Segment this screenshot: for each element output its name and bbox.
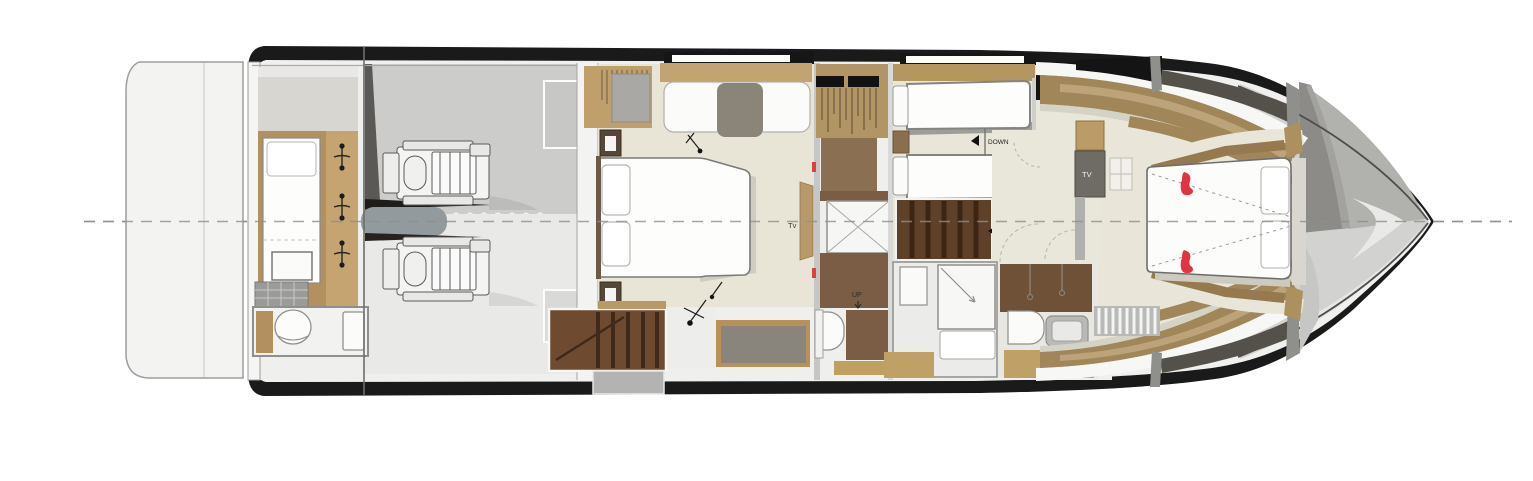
svg-text:UP: UP xyxy=(852,292,862,299)
svg-text:TV: TV xyxy=(1082,170,1092,179)
svg-text:Tv: Tv xyxy=(788,221,797,230)
svg-text:DOWN: DOWN xyxy=(988,139,1009,146)
